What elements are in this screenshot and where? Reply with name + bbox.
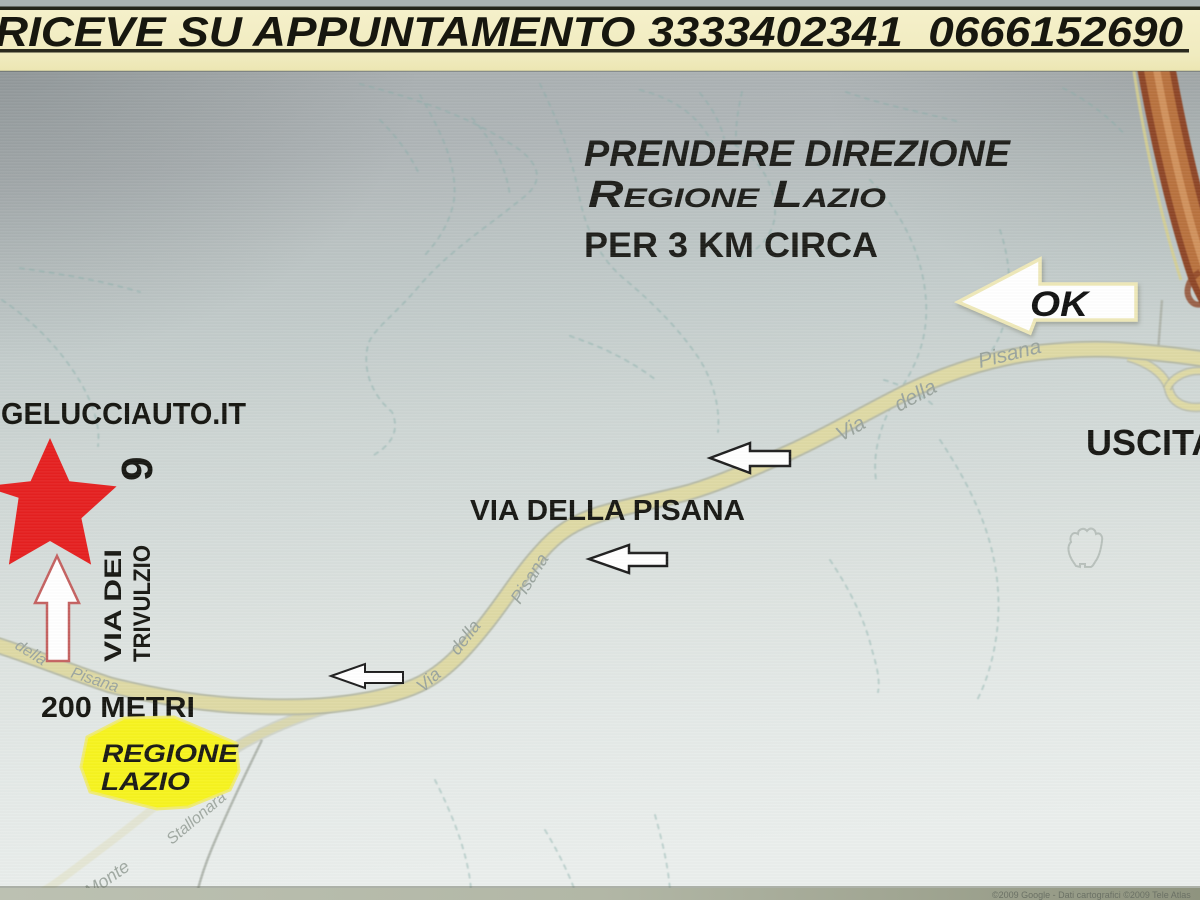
svg-text:Regione Lazio: Regione Lazio <box>588 174 886 216</box>
svg-text:TRIVULZIO: TRIVULZIO <box>129 545 156 662</box>
svg-text:OK: OK <box>1030 285 1091 324</box>
svg-text:RICEVE SU APPUNTAMENTO 3333402: RICEVE SU APPUNTAMENTO 3333402341 066615… <box>0 8 1183 55</box>
svg-text:PRENDERE DIREZIONE: PRENDERE DIREZIONE <box>584 133 1011 174</box>
svg-text:VIA DELLA PISANA: VIA DELLA PISANA <box>470 495 745 527</box>
svg-text:LAZIO: LAZIO <box>101 768 191 796</box>
svg-text:©2009 Google - Dati cartografi: ©2009 Google - Dati cartografici ©2009 T… <box>992 890 1191 900</box>
svg-text:REGIONE: REGIONE <box>102 740 240 768</box>
svg-text:VIA DEI: VIA DEI <box>100 549 127 662</box>
svg-text:GELUCCIAUTO.IT: GELUCCIAUTO.IT <box>1 396 246 431</box>
svg-text:USCITA: USCITA <box>1086 422 1200 463</box>
svg-text:PER 3 KM CIRCA: PER 3 KM CIRCA <box>584 226 878 265</box>
svg-text:9: 9 <box>113 457 162 481</box>
